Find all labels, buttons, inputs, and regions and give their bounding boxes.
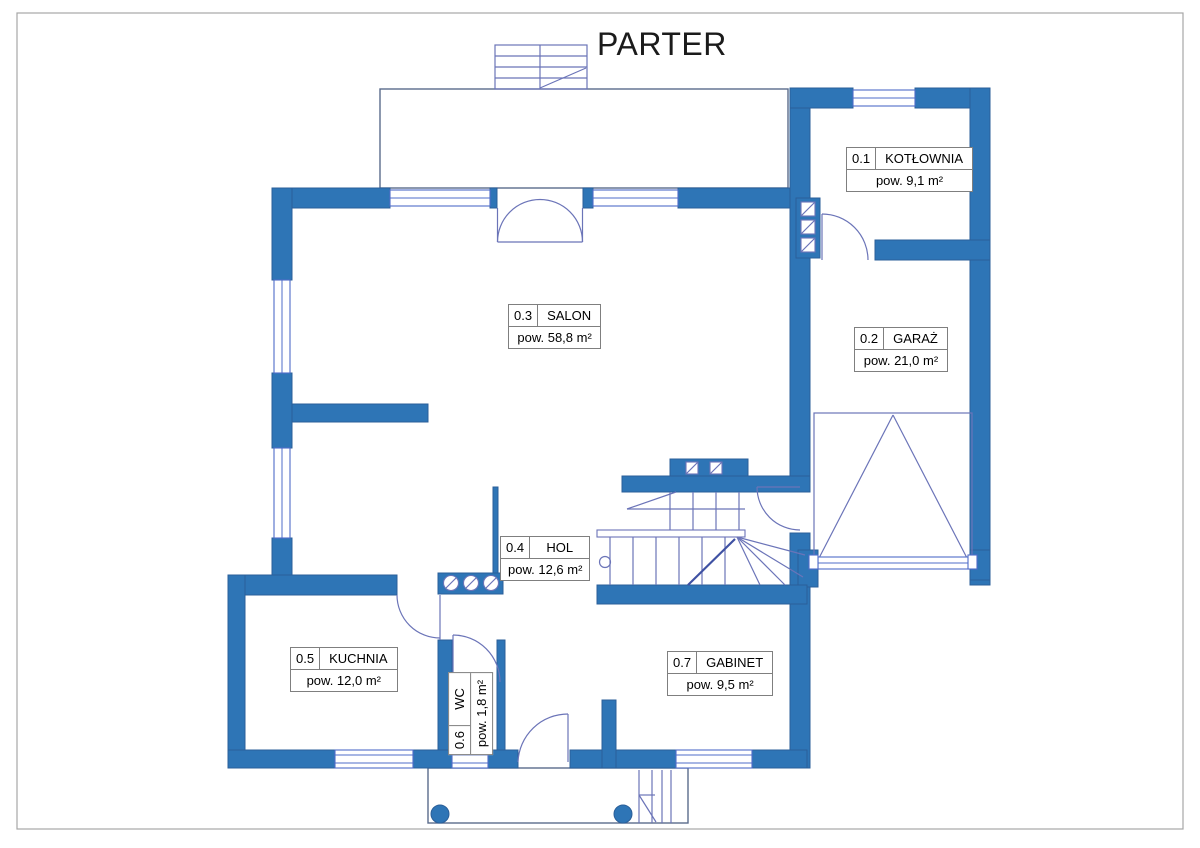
garage-tilt-symbol [818, 415, 893, 560]
room-label-garaz: 0.2GARAŻ pow. 21,0 m² [854, 327, 948, 372]
porch-steps [639, 770, 671, 823]
room-label-kuchnia: 0.5KUCHNIA pow. 12,0 m² [290, 647, 398, 692]
stair-rail [597, 530, 745, 537]
room-number: 0.1 [847, 148, 876, 169]
kotlownia-door [822, 214, 868, 260]
garage [809, 413, 977, 569]
window [853, 90, 915, 106]
window [274, 280, 290, 373]
newel-post [600, 557, 611, 568]
room-area: pow. 1,8 m² [471, 673, 492, 754]
page-border [17, 13, 1183, 829]
garage-floor-outline [814, 413, 972, 563]
window [274, 448, 290, 538]
terrace [380, 45, 788, 188]
room-name: KUCHNIA [320, 648, 397, 669]
floor-plan-drawing [0, 0, 1200, 848]
room-name: KOTŁOWNIA [876, 148, 972, 169]
floor-plan-page: PARTER [0, 0, 1200, 848]
room-number: 0.5 [291, 648, 320, 669]
room-label-salon: 0.3SALON pow. 58,8 m² [508, 304, 601, 349]
staircase [597, 492, 805, 585]
room-label-gabinet: 0.7GABINET pow. 9,5 m² [667, 651, 773, 696]
entry-porch [428, 768, 688, 823]
vent-flue-circles [444, 576, 499, 591]
room-area: pow. 12,0 m² [291, 670, 397, 691]
front-door [518, 714, 568, 762]
room-number: 0.7 [668, 652, 697, 673]
room-area: pow. 58,8 m² [509, 327, 600, 348]
room-label-wc: 0.6WC pow. 1,8 m² [448, 672, 493, 755]
stair-break-line [688, 539, 735, 585]
room-name: WC [449, 673, 470, 725]
room-area: pow. 12,6 m² [501, 559, 589, 580]
window [676, 750, 752, 768]
room-name: GABINET [697, 652, 772, 673]
room-label-kotlownia: 0.1KOTŁOWNIA pow. 9,1 m² [846, 147, 973, 192]
window [390, 190, 490, 206]
room-name: GARAŻ [884, 328, 947, 349]
room-name: SALON [538, 305, 600, 326]
room-number: 0.4 [501, 537, 530, 558]
room-number: 0.6 [449, 725, 470, 754]
porch-post [614, 805, 632, 823]
kitchen-door [397, 595, 440, 640]
room-area: pow. 9,1 m² [847, 170, 972, 191]
room-area: pow. 21,0 m² [855, 350, 947, 371]
terrace-double-door [498, 200, 583, 243]
room-name: HOL [530, 537, 589, 558]
window [593, 190, 678, 206]
hol-garage-door [757, 487, 800, 530]
porch-post [431, 805, 449, 823]
room-number: 0.3 [509, 305, 538, 326]
room-label-hol: 0.4HOL pow. 12,6 m² [500, 536, 590, 581]
room-number: 0.2 [855, 328, 884, 349]
room-area: pow. 9,5 m² [668, 674, 772, 695]
garage-tilt-symbol [893, 415, 968, 560]
window [335, 750, 413, 768]
